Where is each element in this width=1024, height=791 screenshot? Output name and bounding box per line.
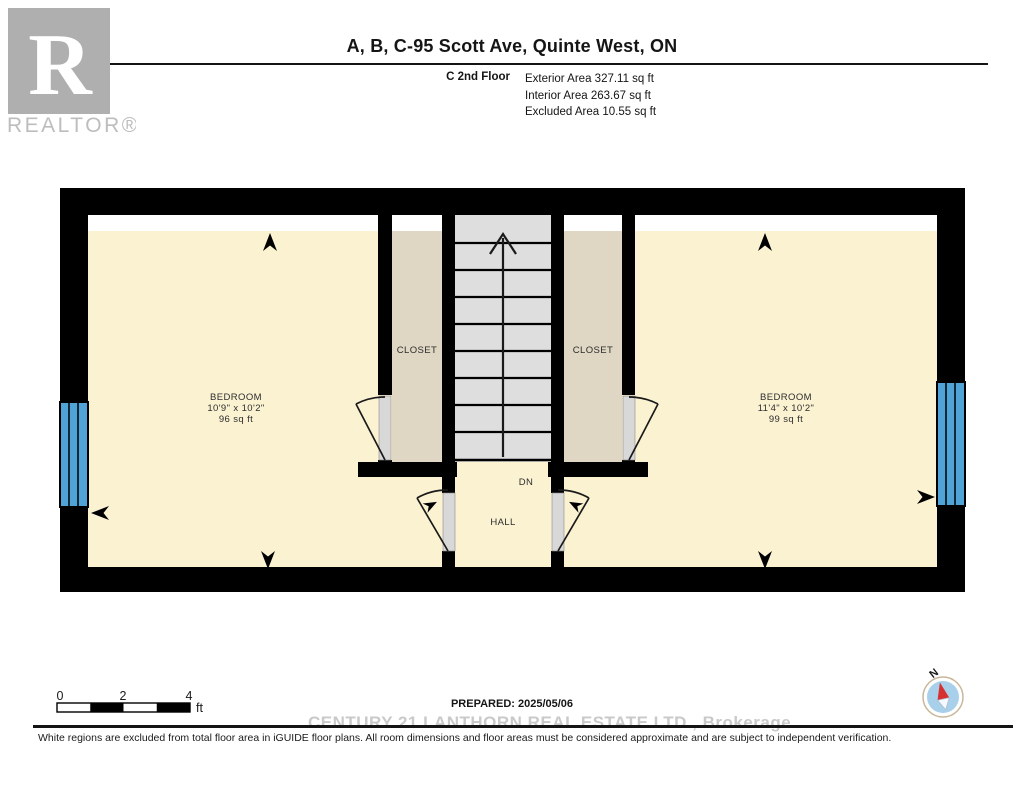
window-right — [937, 382, 965, 506]
bedroom-right-name: BEDROOM — [760, 392, 812, 403]
brokerage-watermark: CENTURY 21 LANTHORN REAL ESTATE LTD., Br… — [308, 713, 648, 733]
hall-label: HALL — [490, 517, 515, 528]
floor-plan-fills — [88, 215, 937, 567]
closet-left-label: CLOSET — [397, 345, 437, 356]
footer-divider — [33, 725, 1013, 728]
bedroom-left-dims: 10'9" x 10'2" — [207, 403, 264, 414]
closet-right-label: CLOSET — [573, 345, 613, 356]
disclaimer-text: White regions are excluded from total fl… — [38, 732, 1018, 744]
window-left — [60, 402, 88, 507]
bedroom-right-area: 99 sq ft — [769, 414, 803, 425]
stairs-down-label: DN — [519, 477, 534, 488]
prepared-date: PREPARED: 2025/05/06 — [0, 698, 1024, 710]
hall-left-door — [443, 493, 455, 551]
floor-plan: BEDROOM 10'9" x 10'2" 96 sq ft BEDROOM 1… — [0, 0, 1024, 791]
bedroom-left-area: 96 sq ft — [219, 414, 253, 425]
bedroom-left-name: BEDROOM — [210, 392, 262, 403]
bedroom-right-dims: 11'4" x 10'2" — [758, 403, 815, 414]
